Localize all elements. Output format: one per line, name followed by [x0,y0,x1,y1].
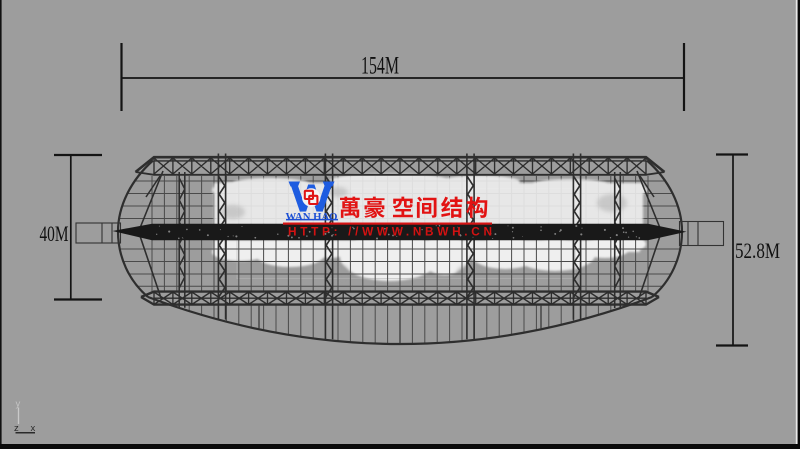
svg-text:52.8M: 52.8M [735,238,780,263]
svg-text:WAN HAO: WAN HAO [286,212,338,223]
svg-text:154M: 154M [361,53,399,80]
svg-text:y: y [16,399,21,410]
svg-text:40M: 40M [40,221,69,246]
